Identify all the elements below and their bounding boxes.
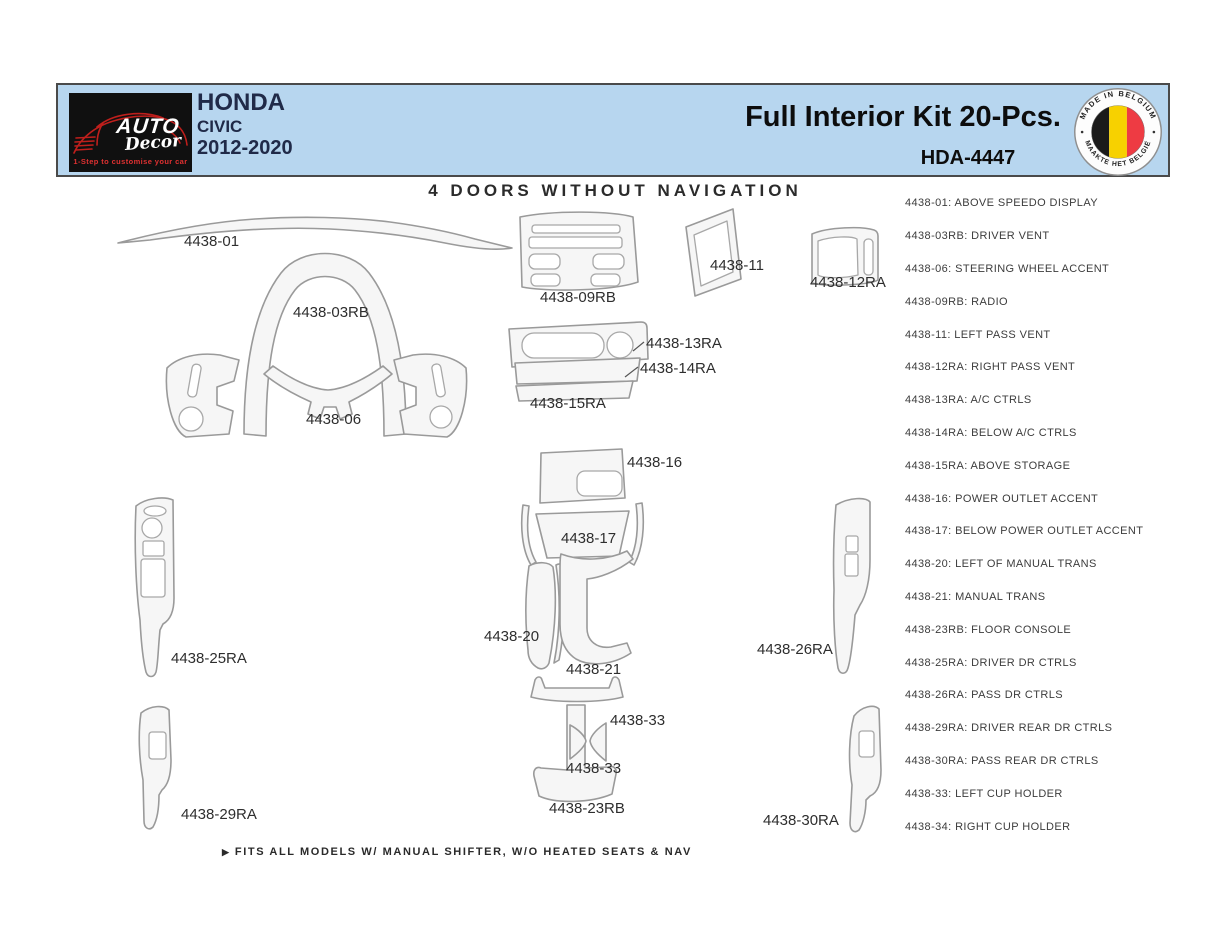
legend-item: 4438-01: ABOVE SPEEDO DISPLAY — [905, 187, 1205, 220]
part-4438-21-shape — [560, 551, 633, 664]
part-4438-14RA-shape — [515, 358, 640, 384]
legend-item: 4438-03RB: DRIVER VENT — [905, 220, 1205, 253]
legend-item: 4438-21: MANUAL TRANS — [905, 581, 1205, 614]
part-left-wing-shape — [166, 354, 239, 437]
part-4438-26RA-shape — [834, 499, 870, 674]
legend-item: 4438-09RB: RADIO — [905, 285, 1205, 318]
part-label-4438-09RB: 4438-09RB — [540, 289, 616, 306]
legend-item: 4438-16: POWER OUTLET ACCENT — [905, 482, 1205, 515]
legend-item: 4438-25RA: DRIVER DR CTRLS — [905, 646, 1205, 679]
part-label-4438-33-lower: 4438-33 — [566, 760, 621, 777]
parts-legend: 4438-01: ABOVE SPEEDO DISPLAY 4438-03RB:… — [905, 187, 1205, 843]
legend-item: 4438-33: LEFT CUP HOLDER — [905, 777, 1205, 810]
part-label-4438-21: 4438-21 — [566, 661, 621, 678]
legend-item: 4438-26RA: PASS DR CTRLS — [905, 679, 1205, 712]
part-label-4438-29RA: 4438-29RA — [181, 806, 257, 823]
legend-item: 4438-06: STEERING WHEEL ACCENT — [905, 253, 1205, 286]
fitment-note: ▶FITS ALL MODELS W/ MANUAL SHIFTER, W/O … — [222, 846, 692, 858]
part-4438-30RA-shape — [850, 706, 881, 831]
legend-item: 4438-23RB: FLOOR CONSOLE — [905, 613, 1205, 646]
part-4438-17-left-sliver — [522, 505, 536, 565]
legend-item: 4438-11: LEFT PASS VENT — [905, 318, 1205, 351]
part-label-4438-23RB: 4438-23RB — [549, 800, 625, 817]
part-label-4438-12RA: 4438-12RA — [810, 274, 886, 291]
part-label-4438-33-upper: 4438-33 — [610, 712, 665, 729]
part-label-4438-17: 4438-17 — [561, 530, 616, 547]
legend-item: 4438-12RA: RIGHT PASS VENT — [905, 351, 1205, 384]
legend-item: 4438-30RA: PASS REAR DR CTRLS — [905, 745, 1205, 778]
legend-item: 4438-17: BELOW POWER OUTLET ACCENT — [905, 515, 1205, 548]
part-4438-01-shape — [118, 217, 512, 249]
part-label-4438-16: 4438-16 — [627, 454, 682, 471]
play-arrow-icon: ▶ — [222, 847, 229, 857]
part-label-4438-26RA: 4438-26RA — [757, 641, 833, 658]
part-label-4438-30RA: 4438-30RA — [763, 812, 839, 829]
legend-item: 4438-15RA: ABOVE STORAGE — [905, 449, 1205, 482]
legend-item: 4438-34: RIGHT CUP HOLDER — [905, 810, 1205, 843]
part-label-4438-15RA: 4438-15RA — [530, 395, 606, 412]
part-label-4438-06: 4438-06 — [306, 411, 361, 428]
part-4438-03RB-shape — [244, 254, 406, 437]
fitment-note-text: FITS ALL MODELS W/ MANUAL SHIFTER, W/O H… — [235, 846, 692, 858]
part-label-4438-03RB: 4438-03RB — [293, 304, 369, 321]
legend-item: 4438-29RA: DRIVER REAR DR CTRLS — [905, 712, 1205, 745]
part-4438-20-shape — [526, 563, 555, 669]
part-label-4438-14RA: 4438-14RA — [640, 360, 716, 377]
part-4438-23RB-top-flange — [531, 677, 623, 702]
part-label-4438-13RA: 4438-13RA — [646, 335, 722, 352]
legend-item: 4438-20: LEFT OF MANUAL TRANS — [905, 548, 1205, 581]
legend-item: 4438-13RA: A/C CTRLS — [905, 384, 1205, 417]
legend-item: 4438-14RA: BELOW A/C CTRLS — [905, 417, 1205, 450]
part-label-4438-11: 4438-11 — [710, 257, 764, 274]
part-4438-33-right-cupholder — [590, 723, 606, 761]
product-sheet: AUTO Decor 1-Step to customise your car … — [0, 0, 1228, 950]
part-label-4438-25RA: 4438-25RA — [171, 650, 247, 667]
part-label-4438-01: 4438-01 — [184, 233, 239, 250]
part-label-4438-20: 4438-20 — [484, 628, 539, 645]
part-4438-29RA-shape — [139, 707, 171, 829]
